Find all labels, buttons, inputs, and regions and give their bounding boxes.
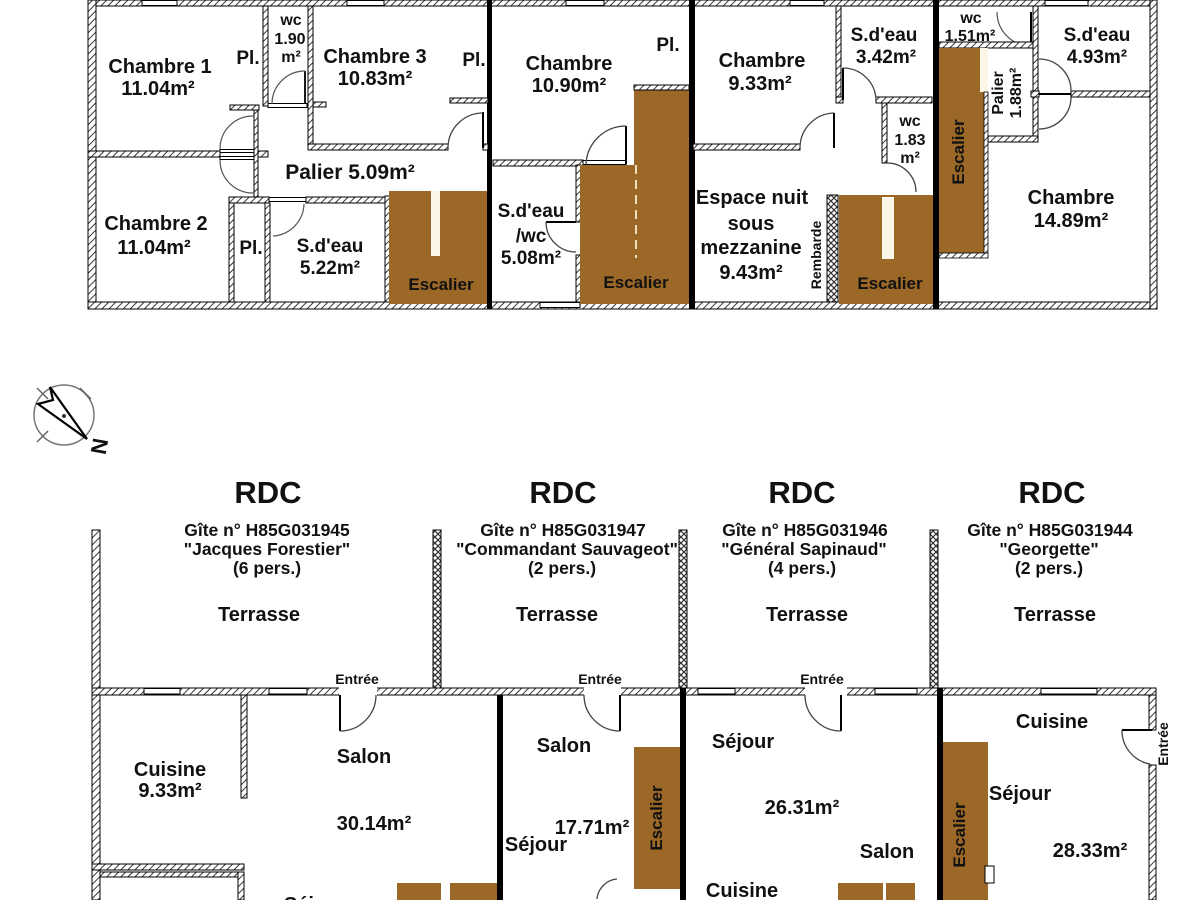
svg-text:Chambre 1: Chambre 1 — [108, 56, 211, 78]
svg-text:RDC: RDC — [768, 475, 835, 510]
svg-text:9.33m²: 9.33m² — [728, 73, 792, 95]
svg-text:Gîte n° H85G031944: Gîte n° H85G031944 — [967, 520, 1133, 540]
svg-text:"Georgette": "Georgette" — [999, 539, 1098, 559]
svg-text:3.42m²: 3.42m² — [856, 47, 916, 68]
svg-text:m²: m² — [281, 49, 301, 66]
svg-text:Entrée: Entrée — [335, 671, 379, 687]
svg-text:wc: wc — [898, 113, 920, 130]
svg-text:Terrasse: Terrasse — [218, 604, 300, 626]
svg-text:10.90m²: 10.90m² — [532, 75, 607, 97]
svg-text:11.04m²: 11.04m² — [121, 78, 195, 100]
svg-text:Séjour: Séjour — [284, 894, 346, 900]
svg-text:Terrasse: Terrasse — [516, 604, 598, 626]
svg-text:Gîte n° H85G031946: Gîte n° H85G031946 — [722, 520, 888, 540]
svg-text:wc: wc — [959, 10, 981, 27]
svg-text:9.33m²: 9.33m² — [138, 780, 202, 802]
svg-text:Chambre 2: Chambre 2 — [104, 213, 207, 235]
svg-text:"Jacques Forestier": "Jacques Forestier" — [184, 539, 350, 559]
svg-text:Rembarde: Rembarde — [808, 221, 824, 290]
svg-text:14.89m²: 14.89m² — [1034, 210, 1109, 232]
svg-text:Chambre: Chambre — [719, 50, 806, 72]
svg-text:Palier 5.09m²: Palier 5.09m² — [285, 161, 415, 184]
svg-text:RDC: RDC — [1018, 475, 1085, 510]
svg-text:Cuisine: Cuisine — [706, 880, 778, 900]
svg-text:Escalier: Escalier — [949, 119, 968, 185]
svg-text:Entrée: Entrée — [800, 671, 844, 687]
svg-text:Chambre: Chambre — [526, 53, 613, 75]
svg-text:Séjour: Séjour — [712, 731, 774, 753]
svg-text:Pl.: Pl. — [236, 48, 259, 69]
svg-text:RDC: RDC — [234, 475, 301, 510]
svg-text:9.43m²: 9.43m² — [719, 262, 783, 284]
svg-text:mezzanine: mezzanine — [700, 237, 801, 259]
svg-text:(4 pers.): (4 pers.) — [768, 558, 836, 578]
svg-text:Terrasse: Terrasse — [1014, 604, 1096, 626]
svg-text:Escalier: Escalier — [647, 785, 666, 851]
svg-text:wc: wc — [279, 12, 301, 29]
svg-text:Escalier: Escalier — [603, 273, 669, 292]
svg-text:4.93m²: 4.93m² — [1067, 47, 1127, 68]
svg-text:m²: m² — [900, 150, 920, 167]
svg-text:Entrée: Entrée — [578, 671, 622, 687]
svg-text:S.d'eau: S.d'eau — [1064, 25, 1131, 46]
svg-text:S.d'eau: S.d'eau — [851, 25, 918, 46]
svg-text:Pl.: Pl. — [656, 35, 679, 56]
svg-text:sous: sous — [728, 213, 775, 235]
svg-text:10.83m²: 10.83m² — [338, 68, 413, 90]
svg-text:Escalier: Escalier — [950, 802, 969, 868]
svg-text:Séjour: Séjour — [505, 834, 567, 856]
svg-text:Chambre: Chambre — [1028, 187, 1115, 209]
svg-text:Escalier: Escalier — [857, 274, 923, 293]
svg-text:S.d'eau: S.d'eau — [297, 236, 364, 257]
svg-text:Séjour: Séjour — [989, 783, 1051, 805]
svg-text:S.d'eau: S.d'eau — [498, 201, 565, 222]
svg-text:Espace nuit: Espace nuit — [696, 187, 809, 209]
svg-text:"Commandant Sauvageot": "Commandant Sauvageot" — [456, 539, 678, 559]
svg-text:(2 pers.): (2 pers.) — [528, 558, 596, 578]
svg-text:Chambre 3: Chambre 3 — [323, 46, 426, 68]
svg-text:Salon: Salon — [537, 735, 591, 757]
svg-text:1.90: 1.90 — [274, 31, 305, 48]
svg-text:Cuisine: Cuisine — [1016, 711, 1088, 733]
svg-text:Salon: Salon — [337, 746, 391, 768]
svg-text:1.88m²: 1.88m² — [1008, 68, 1025, 119]
svg-text:(6 pers.): (6 pers.) — [233, 558, 301, 578]
svg-text:Gîte n° H85G031947: Gîte n° H85G031947 — [480, 520, 646, 540]
svg-text:Gîte n° H85G031945: Gîte n° H85G031945 — [184, 520, 350, 540]
svg-text:26.31m²: 26.31m² — [765, 797, 840, 819]
svg-text:(2 pers.): (2 pers.) — [1015, 558, 1083, 578]
svg-text:Salon: Salon — [860, 841, 914, 863]
svg-text:RDC: RDC — [529, 475, 596, 510]
svg-text:11.04m²: 11.04m² — [117, 237, 191, 259]
svg-text:5.08m²: 5.08m² — [501, 248, 561, 269]
svg-text:"Général Sapinaud": "Général Sapinaud" — [721, 539, 886, 559]
svg-text:Cuisine: Cuisine — [134, 759, 206, 781]
svg-text:Terrasse: Terrasse — [766, 604, 848, 626]
svg-text:28.33m²: 28.33m² — [1053, 840, 1128, 862]
svg-text:30.14m²: 30.14m² — [337, 813, 412, 835]
svg-text:Entrée: Entrée — [1155, 722, 1171, 766]
svg-text:1.83: 1.83 — [894, 132, 925, 149]
svg-text:Escalier: Escalier — [408, 275, 474, 294]
svg-text:Pl.: Pl. — [239, 238, 262, 259]
svg-text:Palier: Palier — [990, 71, 1007, 115]
svg-text:5.22m²: 5.22m² — [300, 258, 360, 279]
svg-text:/wc: /wc — [516, 226, 547, 247]
svg-text:Pl.: Pl. — [462, 50, 485, 71]
